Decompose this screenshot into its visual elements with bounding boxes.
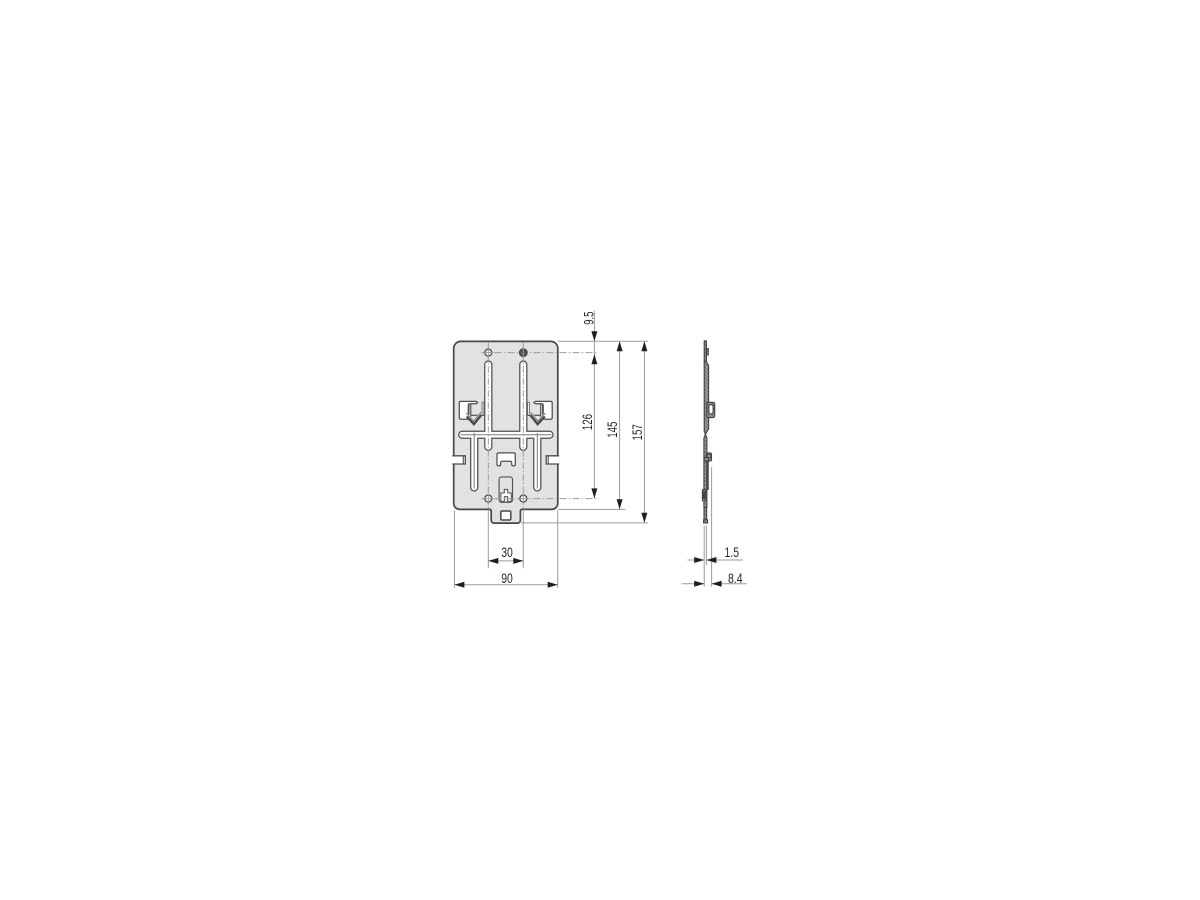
- svg-text:90: 90: [501, 571, 513, 586]
- svg-text:126: 126: [580, 414, 595, 430]
- svg-text:30: 30: [501, 545, 513, 560]
- svg-text:145: 145: [605, 422, 620, 438]
- svg-text:1.5: 1.5: [725, 545, 740, 560]
- svg-text:157: 157: [630, 424, 645, 440]
- svg-text:9.5: 9.5: [581, 312, 596, 325]
